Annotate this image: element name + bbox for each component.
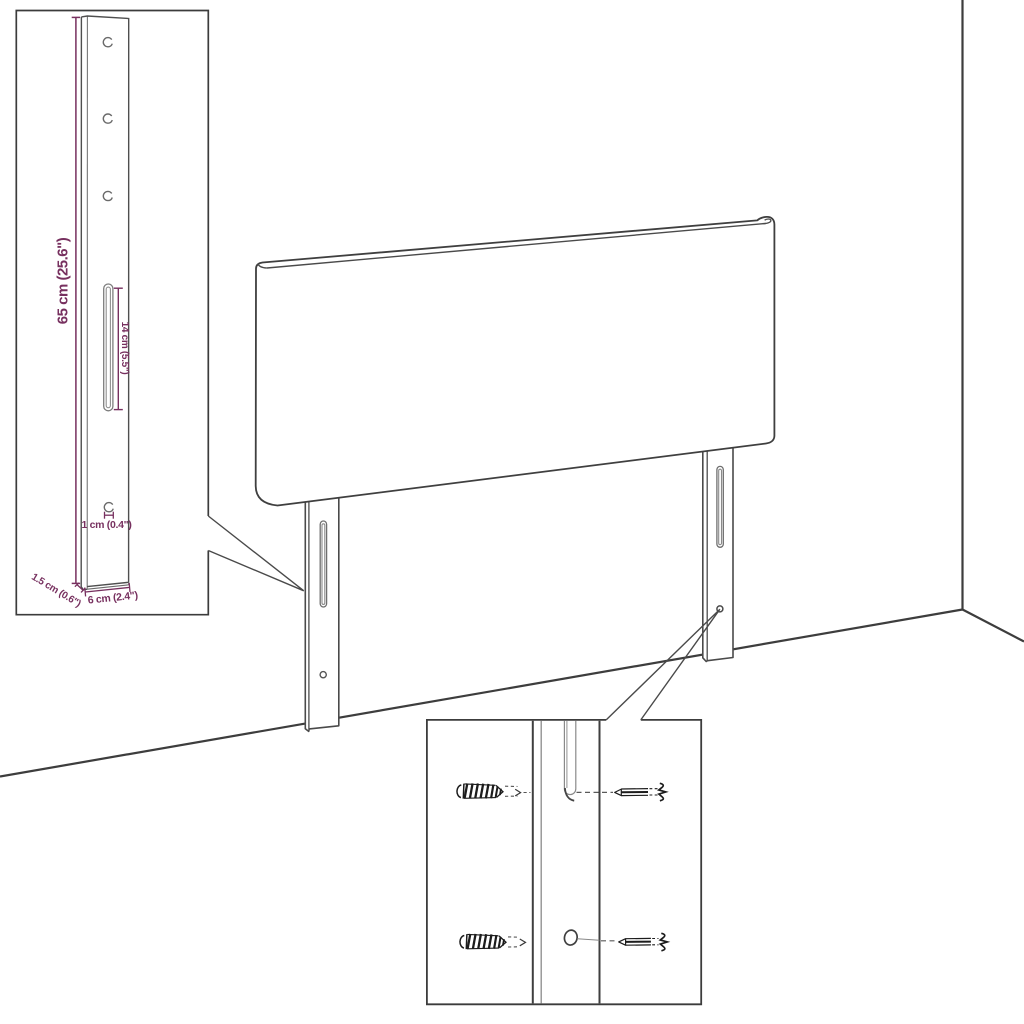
svg-text:14 cm (5.5"): 14 cm (5.5") xyxy=(119,322,130,375)
svg-text:1 cm (0.4"): 1 cm (0.4") xyxy=(81,519,131,531)
svg-text:65 cm (25.6"): 65 cm (25.6") xyxy=(54,237,71,324)
